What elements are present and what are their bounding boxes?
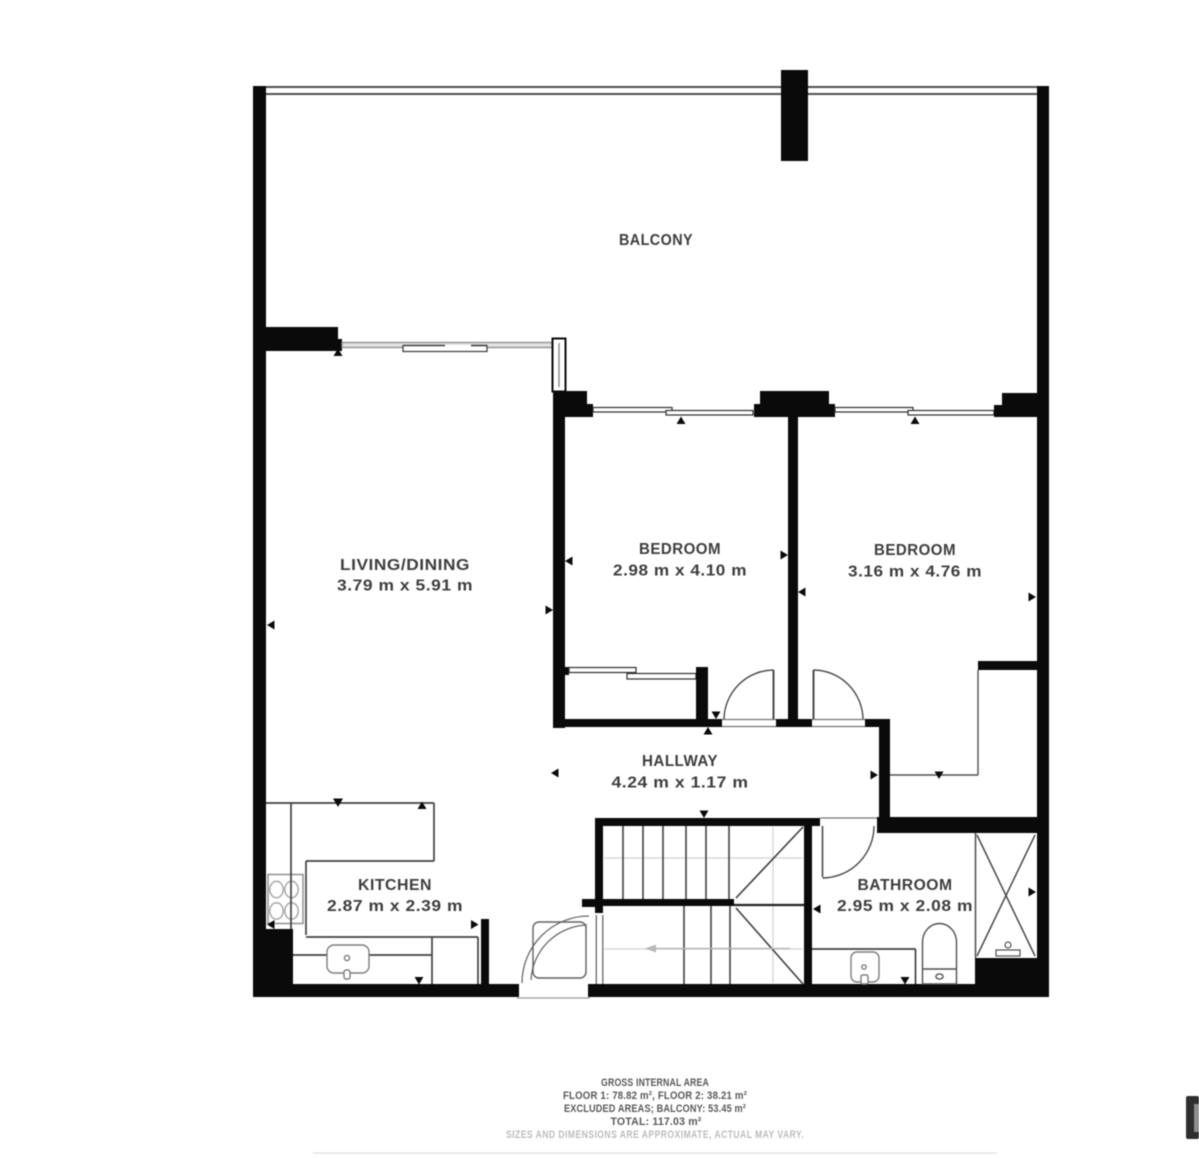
svg-text:4.24 m x 1.17 m: 4.24 m x 1.17 m <box>612 775 749 792</box>
svg-text:BEDROOM: BEDROOM <box>639 541 721 558</box>
svg-text:GROSS INTERNAL AREA: GROSS INTERNAL AREA <box>601 1077 709 1089</box>
svg-text:FLOOR 1: 78.82 m², FLOOR 2: 38: FLOOR 1: 78.82 m², FLOOR 2: 38.21 m² <box>563 1090 747 1102</box>
svg-text:BALCONY: BALCONY <box>619 232 693 249</box>
svg-text:2.98 m x 4.10 m: 2.98 m x 4.10 m <box>613 563 747 580</box>
svg-text:HALLWAY: HALLWAY <box>642 753 718 770</box>
svg-text:3.16 m x 4.76 m: 3.16 m x 4.76 m <box>848 564 982 581</box>
svg-text:2.87 m x 2.39 m: 2.87 m x 2.39 m <box>327 898 463 915</box>
svg-text:LIVING/DINING: LIVING/DINING <box>340 557 470 574</box>
svg-text:TOTAL: 117.03 m²: TOTAL: 117.03 m² <box>611 1116 702 1128</box>
svg-text:KITCHEN: KITCHEN <box>358 877 432 894</box>
svg-text:EXCLUDED AREAS; BALCONY: 53.45: EXCLUDED AREAS; BALCONY: 53.45 m² <box>564 1103 746 1115</box>
svg-text:BEDROOM: BEDROOM <box>874 542 956 559</box>
svg-text:BATHROOM: BATHROOM <box>858 877 953 894</box>
svg-text:3.79 m x 5.91 m: 3.79 m x 5.91 m <box>337 578 473 595</box>
svg-text:2.95 m x 2.08 m: 2.95 m x 2.08 m <box>837 898 973 915</box>
svg-text:SIZES AND DIMENSIONS ARE APPRO: SIZES AND DIMENSIONS ARE APPROXIMATE, AC… <box>506 1129 804 1141</box>
